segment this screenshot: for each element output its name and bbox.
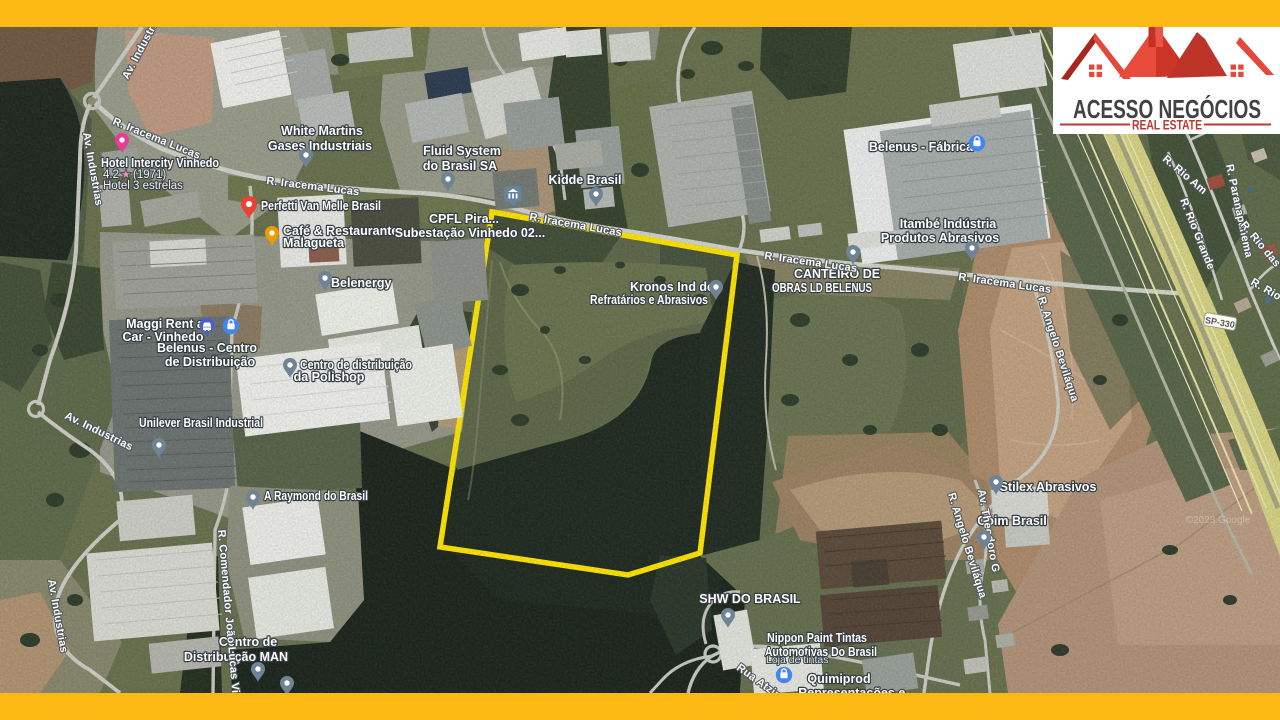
svg-text:Kidde Brasil: Kidde Brasil (549, 173, 622, 187)
svg-text:Itambé Indústria: Itambé Indústria (900, 217, 998, 231)
svg-text:Belenergy: Belenergy (331, 276, 391, 290)
svg-text:OBRAS LD BELENUS: OBRAS LD BELENUS (772, 281, 872, 295)
svg-text:Loja de tintas: Loja de tintas (766, 654, 828, 666)
svg-text:CPFL Pira...: CPFL Pira... (429, 212, 499, 226)
svg-text:Fluid System: Fluid System (423, 144, 501, 158)
svg-text:Belenus - Centro: Belenus - Centro (157, 341, 257, 355)
svg-text:do Brasil SA: do Brasil SA (423, 159, 497, 173)
svg-text:Malagueta: Malagueta (283, 236, 345, 250)
svg-text:A Raymond do Brasil: A Raymond do Brasil (264, 489, 368, 503)
svg-text:Kronos Ind de: Kronos Ind de (630, 280, 714, 294)
svg-text:Hotel Intercity Vinhedo: Hotel Intercity Vinhedo (101, 155, 219, 170)
svg-text:Produtos Abrasivos: Produtos Abrasivos (881, 231, 999, 245)
svg-text:White Martins: White Martins (281, 124, 363, 138)
svg-text:da Polishop: da Polishop (294, 370, 365, 384)
svg-text:Refratários e Abrasivos: Refratários e Abrasivos (590, 293, 708, 307)
svg-text:de Distribuição: de Distribuição (165, 355, 256, 369)
svg-text:Hotel 3 estrelas: Hotel 3 estrelas (103, 180, 183, 192)
svg-text:SHW DO BRASIL: SHW DO BRASIL (699, 592, 801, 606)
svg-text:Gases Industriais: Gases Industriais (268, 139, 372, 153)
svg-text:Unilever Brasil Industrial: Unilever Brasil Industrial (139, 416, 263, 430)
svg-text:Perfetti Van Melle Brasil: Perfetti Van Melle Brasil (261, 198, 381, 213)
svg-text:Quimiprod: Quimiprod (807, 672, 870, 686)
svg-text:Stilex Abrasivos: Stilex Abrasivos (1000, 480, 1097, 494)
svg-text:©2023 Google: ©2023 Google (1186, 515, 1251, 526)
svg-text:Nippon Paint Tintas: Nippon Paint Tintas (767, 631, 867, 645)
svg-text:Belenus - Fábrica: Belenus - Fábrica (869, 140, 974, 154)
svg-text:Maggi Rent a: Maggi Rent a (126, 317, 205, 331)
svg-text:REAL ESTATE: REAL ESTATE (1132, 118, 1202, 133)
svg-text:Subestação Vinhedo 02...: Subestação Vinhedo 02... (395, 226, 546, 240)
